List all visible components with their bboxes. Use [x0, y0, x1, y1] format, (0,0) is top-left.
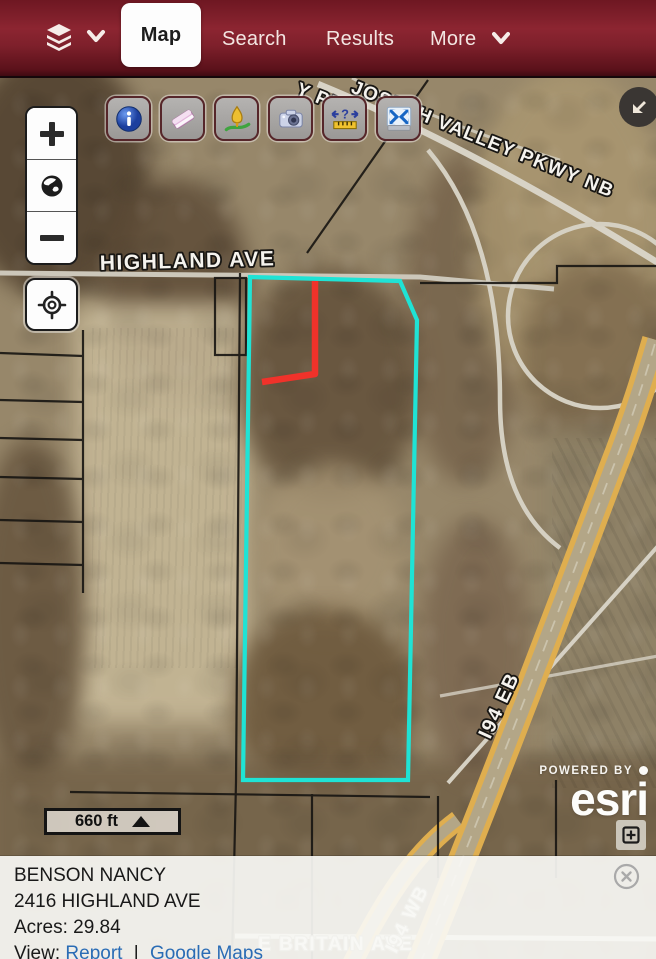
eraser-icon: [167, 103, 199, 135]
acres-line: Acres: 29.84: [14, 917, 121, 939]
zoom-out-button[interactable]: [27, 211, 76, 263]
arrow-down-left-icon: [629, 97, 649, 117]
camera-icon: [275, 103, 307, 135]
layers-icon: [42, 22, 76, 52]
road-ramp: [428, 150, 560, 548]
map-toolbar: ?: [106, 96, 421, 141]
acres-value: 29.84: [73, 917, 121, 938]
parcel-address: 2416 HIGHLAND AVE: [14, 891, 201, 913]
home-extent-button[interactable]: [27, 159, 76, 211]
label-highland-ave: HIGHLAND AVE: [100, 247, 276, 275]
zoom-extent-icon: [383, 103, 415, 135]
erase-button[interactable]: [160, 96, 205, 141]
collapse-panel-button[interactable]: [619, 87, 656, 127]
tab-more[interactable]: More: [430, 0, 476, 78]
plus-icon: [40, 122, 64, 146]
close-panel-button[interactable]: [613, 863, 640, 890]
globe-icon: [39, 173, 65, 199]
measure-question-glyph: ?: [341, 106, 349, 121]
drawn-redline: [262, 281, 315, 382]
parcel-viewer-app: Map Search Results More: [0, 0, 656, 959]
scale-text: 660 ft: [75, 812, 118, 831]
crosshair-icon: [37, 290, 67, 320]
google-maps-link[interactable]: Google Maps: [150, 943, 263, 959]
measure-icon: ?: [329, 103, 361, 135]
acres-label: Acres:: [14, 917, 68, 938]
zoom-extent-button[interactable]: [376, 96, 421, 141]
screenshot-button[interactable]: [268, 96, 313, 141]
minus-icon: [40, 235, 64, 241]
selected-parcel-outline[interactable]: [243, 277, 417, 780]
road-highland-ave: [0, 273, 554, 289]
parcel-info-panel: BENSON NANCY 2416 HIGHLAND AVE Acres: 29…: [0, 856, 656, 959]
zoom-in-button[interactable]: [27, 108, 76, 159]
tab-results-label: Results: [326, 28, 394, 51]
plus-box-icon: [621, 825, 641, 845]
layers-menu-button[interactable]: [42, 22, 76, 52]
link-separator: |: [134, 943, 139, 959]
tab-search-label: Search: [222, 28, 287, 51]
map-canvas[interactable]: HIGHLAND AVE Y PKW JOSEPH VALLEY PKWY NB…: [0, 78, 656, 959]
tab-more-label: More: [430, 28, 476, 51]
tab-map-label: Map: [141, 24, 182, 47]
view-label: View:: [14, 943, 60, 959]
zoom-control-group: [25, 106, 78, 265]
locate-button[interactable]: [25, 278, 78, 331]
tab-search[interactable]: Search: [222, 0, 287, 78]
more-chevron-down-icon[interactable]: [492, 31, 510, 45]
draw-button[interactable]: [214, 96, 259, 141]
measure-button[interactable]: ?: [322, 96, 367, 141]
esri-logo: esri: [539, 780, 648, 819]
scale-up-triangle-icon[interactable]: [132, 816, 150, 827]
layers-chevron-down-icon[interactable]: [86, 28, 106, 44]
close-icon: [613, 863, 640, 890]
owner-name: BENSON NANCY: [14, 865, 166, 887]
tab-results[interactable]: Results: [326, 0, 394, 78]
tab-map[interactable]: Map: [121, 3, 201, 67]
esri-attribution: POWERED BY esri: [539, 762, 648, 819]
report-link[interactable]: Report: [65, 943, 122, 959]
draw-icon: [221, 103, 253, 135]
identify-button[interactable]: [106, 96, 151, 141]
info-icon: [113, 103, 145, 135]
expand-attribution-button[interactable]: [616, 820, 646, 850]
app-header: Map Search Results More: [0, 0, 656, 78]
scale-bar: 660 ft: [44, 808, 181, 835]
view-line: View: Report | Google Maps: [14, 943, 263, 959]
